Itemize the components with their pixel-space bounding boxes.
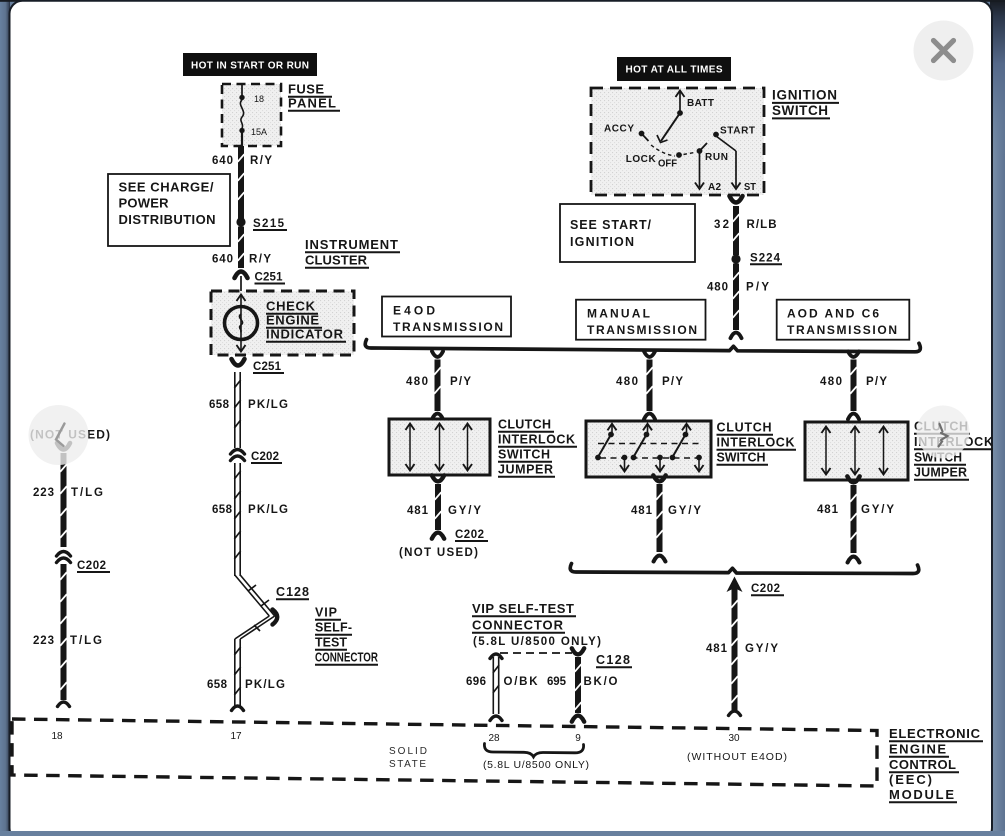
svg-text:R/Y: R/Y bbox=[250, 155, 272, 167]
svg-text:OFF: OFF bbox=[658, 159, 677, 170]
svg-text:GY/Y: GY/Y bbox=[861, 504, 894, 516]
svg-text:SWITCH: SWITCH bbox=[717, 451, 766, 465]
svg-text:TRANSMISSION: TRANSMISSION bbox=[587, 323, 697, 337]
svg-text:481: 481 bbox=[817, 504, 839, 516]
svg-text:PK/LG: PK/LG bbox=[245, 679, 285, 691]
svg-text:TEST: TEST bbox=[315, 636, 347, 650]
svg-text:VIP SELF-TEST: VIP SELF-TEST bbox=[472, 601, 574, 616]
svg-text:(EEC): (EEC) bbox=[889, 772, 932, 787]
svg-text:P/Y: P/Y bbox=[450, 376, 471, 388]
svg-text:SEE START/: SEE START/ bbox=[570, 218, 652, 232]
svg-text:C202: C202 bbox=[77, 560, 106, 572]
svg-text:INTERLOCK: INTERLOCK bbox=[717, 436, 795, 450]
svg-text:ENGINE: ENGINE bbox=[266, 313, 319, 328]
svg-text:IGNITION: IGNITION bbox=[570, 235, 634, 249]
svg-text:BK/O: BK/O bbox=[584, 676, 618, 688]
svg-text:CLUSTER: CLUSTER bbox=[305, 253, 368, 268]
svg-text:INTERLOCK: INTERLOCK bbox=[498, 433, 575, 447]
svg-text:S224: S224 bbox=[750, 253, 781, 265]
svg-text:JUMPER: JUMPER bbox=[498, 463, 553, 477]
svg-text:C128: C128 bbox=[276, 585, 309, 599]
svg-text:FUSE: FUSE bbox=[288, 82, 324, 97]
svg-text:(5.8L U/8500 ONLY): (5.8L U/8500 ONLY) bbox=[483, 759, 589, 771]
svg-text:CONNECTOR: CONNECTOR bbox=[472, 618, 564, 633]
svg-text:DISTRIBUTION: DISTRIBUTION bbox=[119, 212, 216, 227]
svg-text:9: 9 bbox=[575, 733, 581, 744]
svg-text:PK/LG: PK/LG bbox=[248, 504, 288, 516]
svg-text:481: 481 bbox=[706, 643, 728, 655]
svg-text:18: 18 bbox=[254, 94, 264, 104]
svg-text:P/Y: P/Y bbox=[746, 282, 769, 294]
svg-text:ELECTRONIC: ELECTRONIC bbox=[889, 726, 981, 741]
svg-text:HOT IN START OR RUN: HOT IN START OR RUN bbox=[191, 61, 309, 72]
svg-text:SEE CHARGE/: SEE CHARGE/ bbox=[119, 180, 214, 195]
svg-text:ACCY: ACCY bbox=[604, 124, 634, 135]
svg-text:480: 480 bbox=[616, 376, 638, 388]
svg-text:P/Y: P/Y bbox=[866, 376, 887, 388]
svg-text:640: 640 bbox=[212, 155, 233, 167]
svg-text:O/BK: O/BK bbox=[504, 676, 539, 688]
svg-text:CHECK: CHECK bbox=[266, 299, 316, 314]
svg-text:CLUTCH: CLUTCH bbox=[717, 421, 772, 435]
svg-text:RUN: RUN bbox=[705, 152, 728, 163]
svg-text:30: 30 bbox=[728, 733, 740, 744]
svg-text:VIP: VIP bbox=[315, 606, 337, 620]
svg-text:P/Y: P/Y bbox=[662, 376, 683, 388]
svg-text:E4OD: E4OD bbox=[393, 304, 435, 318]
svg-text:C128: C128 bbox=[596, 653, 630, 667]
svg-text:R/LB: R/LB bbox=[747, 219, 777, 231]
svg-text:17: 17 bbox=[230, 731, 242, 742]
svg-text:C251: C251 bbox=[253, 361, 282, 373]
svg-text:IGNITION: IGNITION bbox=[772, 88, 837, 103]
svg-text:C202: C202 bbox=[251, 451, 279, 463]
svg-text:696: 696 bbox=[466, 676, 486, 688]
svg-text:481: 481 bbox=[407, 505, 429, 517]
svg-text:LOCK: LOCK bbox=[626, 154, 657, 165]
svg-text:HOT AT ALL TIMES: HOT AT ALL TIMES bbox=[626, 65, 723, 76]
svg-text:658: 658 bbox=[209, 399, 230, 411]
svg-text:C251: C251 bbox=[255, 272, 284, 284]
svg-text:JUMPER: JUMPER bbox=[914, 466, 967, 480]
svg-text:ENGINE: ENGINE bbox=[889, 742, 946, 757]
svg-text:640: 640 bbox=[212, 254, 233, 266]
svg-text:480: 480 bbox=[820, 376, 842, 388]
svg-text:480: 480 bbox=[406, 376, 428, 388]
svg-text:R/Y: R/Y bbox=[249, 254, 271, 266]
svg-text:CONTROL: CONTROL bbox=[889, 757, 956, 772]
svg-text:TRANSMISSION: TRANSMISSION bbox=[393, 320, 503, 334]
svg-text:A2: A2 bbox=[708, 182, 721, 193]
svg-text:PK/LG: PK/LG bbox=[248, 399, 288, 411]
svg-text:INDICATOR: INDICATOR bbox=[266, 327, 344, 342]
svg-text:T/LG: T/LG bbox=[70, 635, 102, 647]
svg-text:ST: ST bbox=[744, 182, 756, 193]
svg-text:15A: 15A bbox=[251, 127, 267, 137]
svg-text:(WITHOUT E4OD): (WITHOUT E4OD) bbox=[687, 751, 787, 763]
svg-text:223: 223 bbox=[33, 635, 54, 647]
svg-text:28: 28 bbox=[488, 733, 500, 744]
svg-text:481: 481 bbox=[631, 505, 653, 517]
svg-text:658: 658 bbox=[212, 504, 233, 516]
svg-text:658: 658 bbox=[207, 679, 228, 691]
svg-text:695: 695 bbox=[547, 676, 567, 688]
svg-text:INSTRUMENT: INSTRUMENT bbox=[305, 237, 398, 252]
svg-text:POWER: POWER bbox=[119, 196, 170, 211]
svg-text:TRANSMISSION: TRANSMISSION bbox=[787, 323, 897, 337]
svg-text:SELF-: SELF- bbox=[315, 621, 352, 635]
svg-text:18: 18 bbox=[51, 731, 63, 742]
svg-text:T/LG: T/LG bbox=[71, 487, 103, 499]
svg-text:PANEL: PANEL bbox=[288, 96, 336, 111]
svg-text:SOLID: SOLID bbox=[389, 746, 427, 757]
svg-text:223: 223 bbox=[33, 487, 54, 499]
svg-text:(5.8L U/8500 ONLY): (5.8L U/8500 ONLY) bbox=[473, 636, 601, 648]
svg-text:MODULE: MODULE bbox=[889, 787, 954, 802]
svg-text:STATE: STATE bbox=[389, 759, 426, 770]
svg-text:SWITCH: SWITCH bbox=[772, 103, 828, 118]
svg-text:GY/Y: GY/Y bbox=[668, 505, 701, 517]
svg-text:CONNECTOR: CONNECTOR bbox=[315, 651, 378, 665]
svg-text:SWITCH: SWITCH bbox=[498, 448, 550, 462]
svg-text:C202: C202 bbox=[455, 529, 484, 541]
svg-text:C202: C202 bbox=[751, 583, 780, 595]
svg-text:START: START bbox=[720, 126, 755, 137]
svg-text:GY/Y: GY/Y bbox=[448, 505, 481, 517]
svg-text:CLUTCH: CLUTCH bbox=[498, 418, 551, 432]
svg-text:480: 480 bbox=[707, 282, 728, 294]
svg-text:(NOT USED): (NOT USED) bbox=[399, 547, 478, 559]
svg-text:GY/Y: GY/Y bbox=[745, 643, 778, 655]
svg-text:BATT: BATT bbox=[687, 98, 714, 109]
